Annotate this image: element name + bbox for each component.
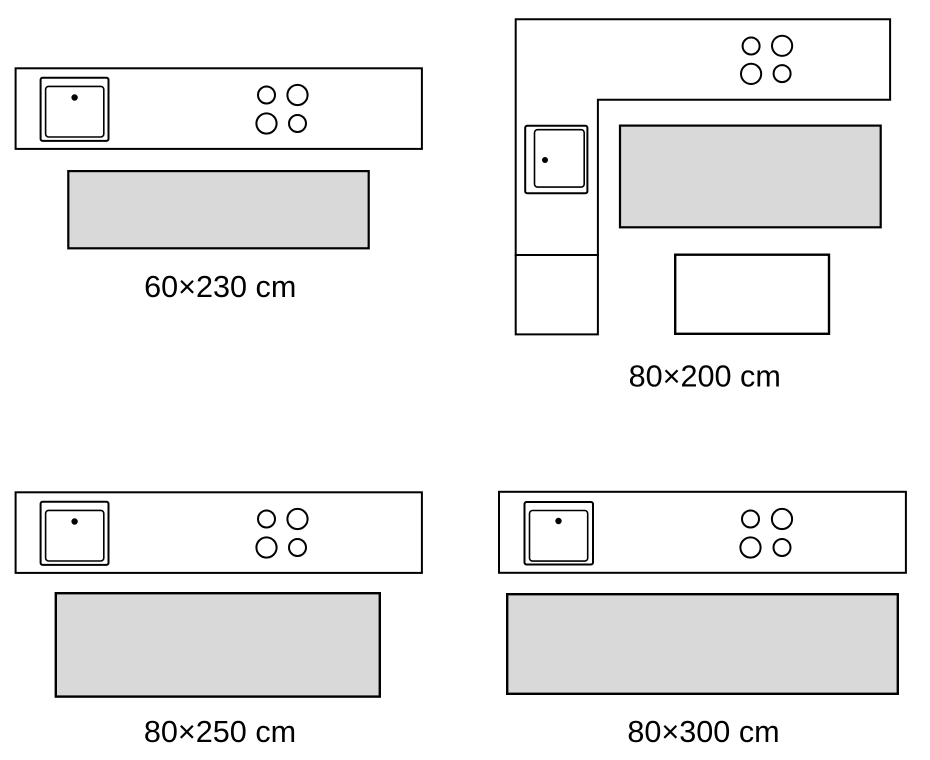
svg-text:80×200 cm: 80×200 cm <box>629 360 781 394</box>
svg-text:80×250 cm: 80×250 cm <box>144 715 296 749</box>
svg-text:60×230 cm: 60×230 cm <box>144 270 296 304</box>
svg-text:80×300 cm: 80×300 cm <box>627 715 779 749</box>
